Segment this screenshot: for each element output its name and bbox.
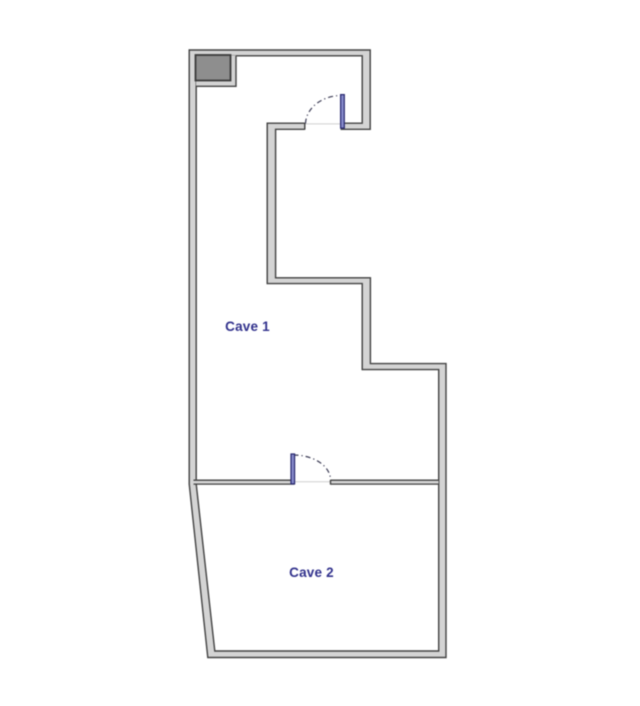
svg-text:Cave 1: Cave 1 <box>225 319 270 334</box>
svg-text:Cave 2: Cave 2 <box>289 565 334 580</box>
